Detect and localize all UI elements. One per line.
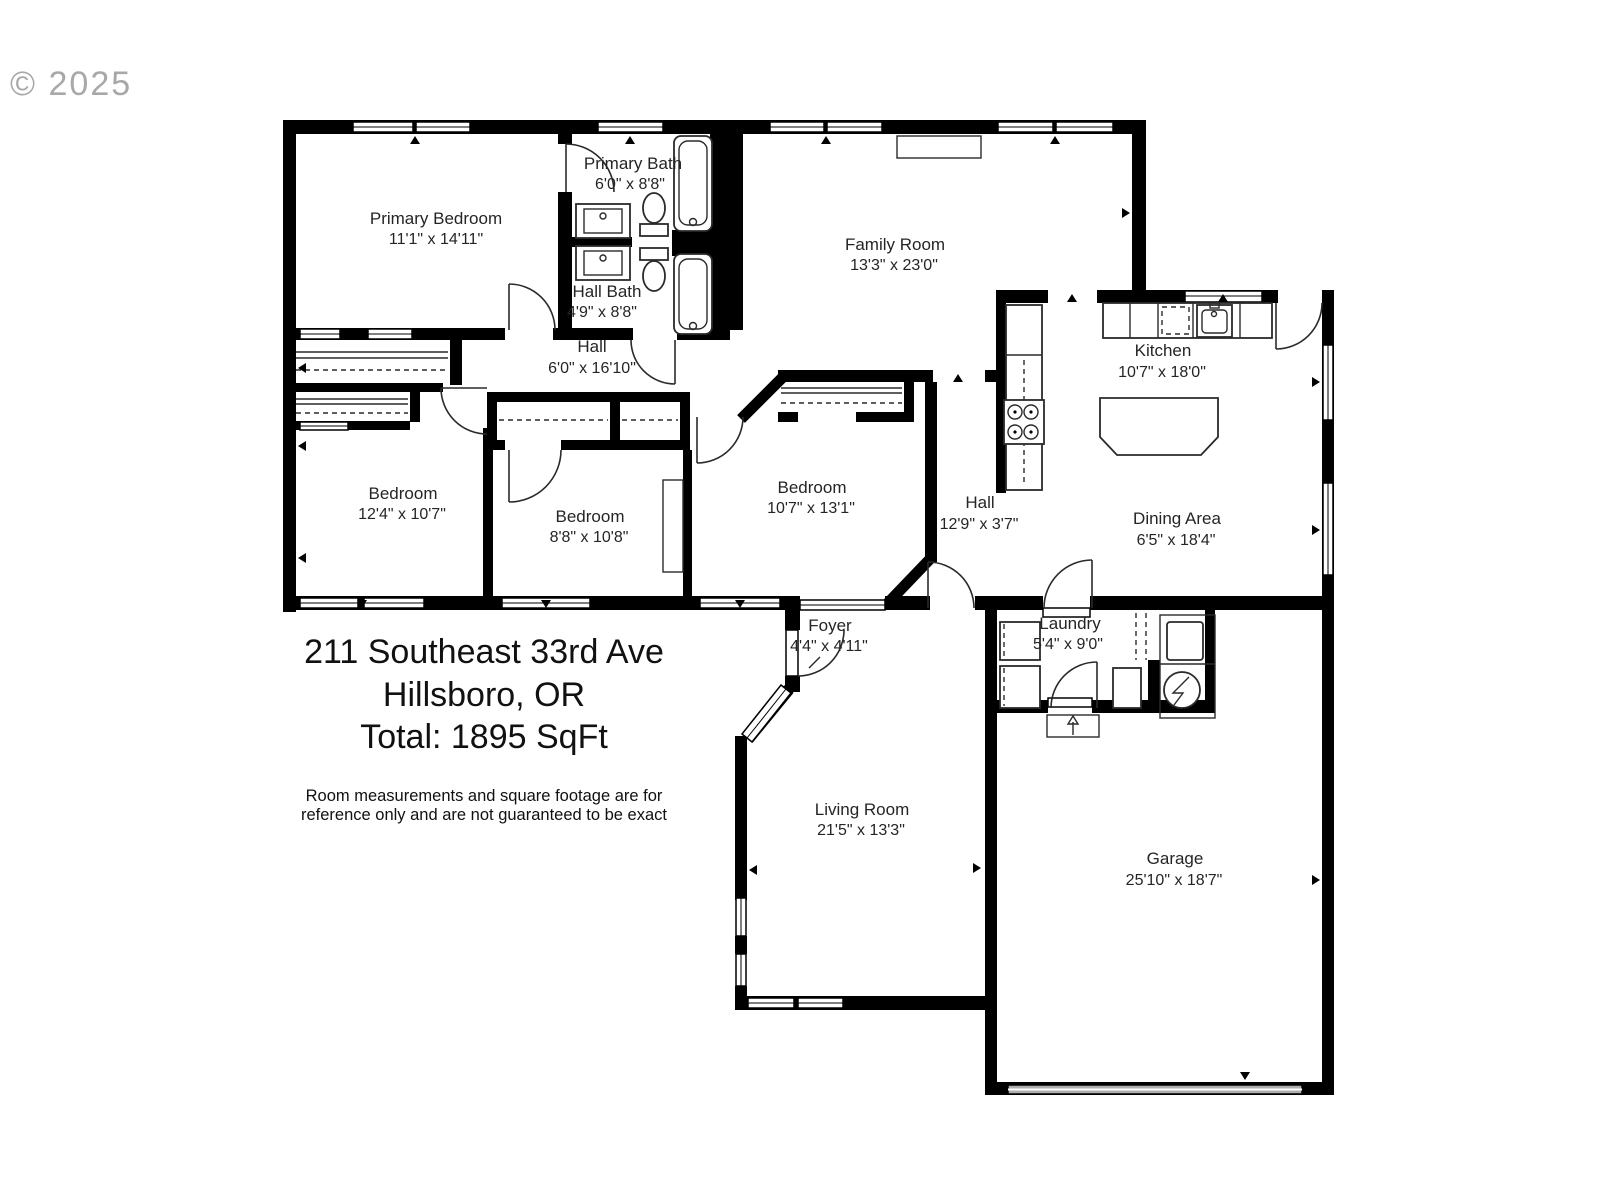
label-family-room: Family Room	[845, 235, 945, 254]
dims-laundry: 5'4" x 9'0"	[1033, 636, 1103, 653]
floorplan-page: © 2025	[0, 0, 1600, 1200]
water-heater-icon	[1164, 672, 1200, 708]
label-hall-bath: Hall Bath	[573, 282, 642, 301]
kitchen-island	[1100, 398, 1218, 455]
dims-garage: 25'10" x 18'7"	[1126, 872, 1223, 889]
label-bedroom-middle: Bedroom	[556, 507, 625, 526]
dims-bedroom-middle: 8'8" x 10'8"	[550, 529, 629, 546]
bedroom-wardrobe	[663, 480, 683, 572]
furnace-icon	[1167, 622, 1203, 660]
kitchen-fixtures	[1004, 303, 1272, 490]
floorplan-drawing: © 2025	[0, 0, 1600, 1200]
address-line2: Hillsboro, OR	[383, 676, 585, 714]
fireplace-icon	[897, 136, 981, 158]
label-bedroom-right: Bedroom	[778, 478, 847, 497]
foyer-leader-line	[809, 657, 820, 668]
label-dining-area: Dining Area	[1133, 509, 1221, 528]
dims-hall-upper: 6'0" x 16'10"	[548, 360, 636, 377]
disclaimer-line1: Room measurements and square footage are…	[306, 787, 663, 805]
dims-kitchen: 10'7" x 18'0"	[1118, 364, 1206, 381]
label-primary-bedroom: Primary Bedroom	[370, 209, 502, 228]
label-laundry: Laundry	[1039, 614, 1101, 633]
address-block: 211 Southeast 33rd Ave Hillsboro, OR Tot…	[301, 633, 667, 824]
disclaimer-line2: reference only and are not guaranteed to…	[301, 806, 667, 824]
garage-step	[1047, 715, 1099, 737]
label-garage: Garage	[1147, 849, 1204, 868]
address-total-sqft: Total: 1895 SqFt	[360, 718, 608, 756]
label-primary-bath: Primary Bath	[584, 154, 682, 173]
dims-bedroom-right: 10'7" x 13'1"	[767, 500, 855, 517]
label-living-room: Living Room	[815, 800, 910, 819]
dims-dining-area: 6'5" x 18'4"	[1137, 532, 1216, 549]
label-bedroom-left: Bedroom	[369, 484, 438, 503]
dims-hall-lower: 12'9" x 3'7"	[940, 516, 1019, 533]
dims-primary-bedroom: 11'1" x 14'11"	[389, 231, 483, 248]
dims-foyer: 4'4" x 4'11"	[790, 638, 868, 655]
dims-hall-bath: 4'9" x 8'8"	[567, 304, 637, 321]
dims-primary-bath: 6'0" x 8'8"	[595, 176, 665, 193]
label-foyer: Foyer	[808, 616, 852, 635]
dims-bedroom-left: 12'4" x 10'7"	[358, 506, 446, 523]
dims-living-room: 21'5" x 13'3"	[817, 822, 905, 839]
label-kitchen: Kitchen	[1135, 341, 1192, 360]
address-line1: 211 Southeast 33rd Ave	[304, 633, 664, 671]
copyright-watermark: © 2025	[10, 65, 132, 103]
toilet-icon	[640, 224, 668, 236]
garage-door	[1008, 1085, 1302, 1094]
label-hall-lower: Hall	[965, 493, 994, 512]
label-hall-upper: Hall	[577, 337, 606, 356]
closet-slider-doors	[300, 329, 412, 430]
kitchen-counter	[1103, 303, 1272, 338]
dryer-icon	[1000, 666, 1040, 708]
toilet-icon	[640, 248, 668, 260]
dims-family-room: 13'3" x 23'0"	[850, 257, 938, 274]
